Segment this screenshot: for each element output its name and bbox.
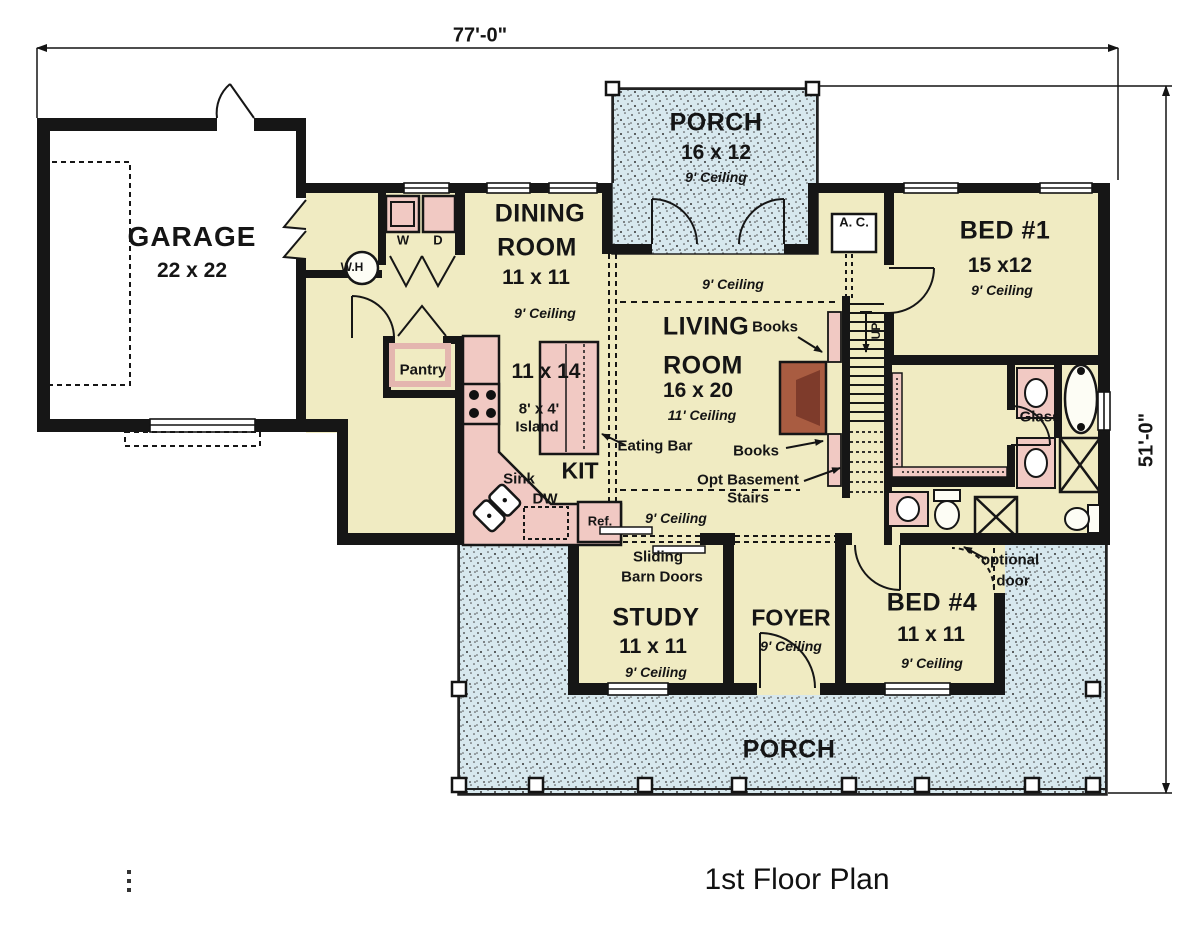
label-optional-door-1: optional (981, 552, 1039, 569)
label-opt-basement-1: Opt Basement (697, 472, 799, 489)
room-label-living-1: LIVING (663, 313, 749, 342)
garage-stoop-dashed (125, 432, 260, 446)
garage-service-door (217, 84, 254, 118)
room-label-dining-2: ROOM (497, 234, 577, 263)
label-sink: Sink (503, 471, 535, 488)
room-label-dining-1: DINING (495, 200, 586, 229)
ceiling-living: 11' Ceiling (668, 407, 736, 423)
dimension-height: 51'-0" (1136, 413, 1159, 467)
label-dryer: D (433, 233, 442, 248)
label-eating-bar: Eating Bar (617, 438, 692, 455)
room-size-study: 11 x 11 (619, 635, 687, 659)
tub-icon (1065, 365, 1097, 433)
label-island-size: 8' x 4' (519, 401, 560, 418)
bookshelf-lower (828, 434, 841, 486)
label-optional-door-2: door (996, 573, 1029, 590)
room-label-study: STUDY (612, 604, 699, 633)
bookshelf-upper (828, 312, 841, 362)
label-books-upper: Books (752, 319, 798, 336)
kitchen-island (540, 342, 598, 454)
label-dishwasher: DW (533, 491, 558, 508)
room-label-bed1: BED #1 (960, 217, 1051, 246)
ceiling-hall-upper: 9' Ceiling (702, 276, 764, 292)
ceiling-foyer: 9' Ceiling (760, 638, 822, 654)
room-label-living-2: ROOM (663, 352, 743, 381)
stove-icon (463, 384, 499, 424)
label-opt-basement-2: Stairs (727, 490, 769, 507)
ceiling-bed1: 9' Ceiling (971, 282, 1033, 298)
room-label-kitchen: KIT (561, 458, 598, 485)
label-sliding-2: Barn Doors (621, 569, 703, 586)
label-glass: Glass (1020, 409, 1061, 426)
room-size-bed4: 11 x 11 (897, 623, 965, 647)
room-label-back-porch: PORCH (743, 736, 836, 765)
ceiling-bed4: 9' Ceiling (901, 655, 963, 671)
room-size-kitchen: 11 x 14 (512, 360, 581, 384)
label-washer: W (397, 233, 409, 248)
room-label-front-porch: PORCH (670, 109, 763, 138)
room-size-garage: 22 x 22 (157, 259, 227, 283)
room-label-foyer: FOYER (751, 605, 830, 632)
label-books-lower: Books (733, 443, 779, 460)
ceiling-study: 9' Ceiling (625, 664, 687, 680)
floor-plan-page: 77'-0" 51'-0" GARAGE 22 x 22 PORCH 16 x … (0, 0, 1200, 940)
room-size-bed1: 15 x12 (968, 254, 1032, 278)
reference-mark (127, 870, 131, 892)
ceiling-hall-lower: 9' Ceiling (645, 510, 707, 526)
floor-plan-drawing (0, 0, 1200, 940)
ceiling-front-porch: 9' Ceiling (685, 169, 747, 185)
dryer-icon (423, 196, 455, 232)
toilet-icon-2 (1065, 505, 1100, 533)
room-size-dining: 11 x 11 (502, 266, 570, 290)
label-stairs-up: UP (869, 323, 883, 340)
dimension-width: 77'-0" (453, 25, 507, 48)
room-size-living: 16 x 20 (663, 379, 733, 403)
room-label-bed4: BED #4 (887, 589, 978, 618)
label-island: Island (515, 419, 558, 436)
room-label-garage: GARAGE (128, 221, 257, 253)
page-title: 1st Floor Plan (704, 863, 889, 897)
label-sliding-1: Sliding (633, 549, 683, 566)
label-refrigerator: Ref. (588, 514, 613, 529)
label-pantry: Pantry (400, 362, 447, 379)
label-water-heater: W.H (341, 260, 364, 274)
room-size-front-porch: 16 x 12 (681, 141, 751, 165)
closet-shelf-bottom (892, 467, 1007, 477)
toilet-icon-1 (934, 490, 960, 529)
label-ac-unit: A. C. (839, 215, 869, 230)
ceiling-dining: 9' Ceiling (514, 305, 576, 321)
